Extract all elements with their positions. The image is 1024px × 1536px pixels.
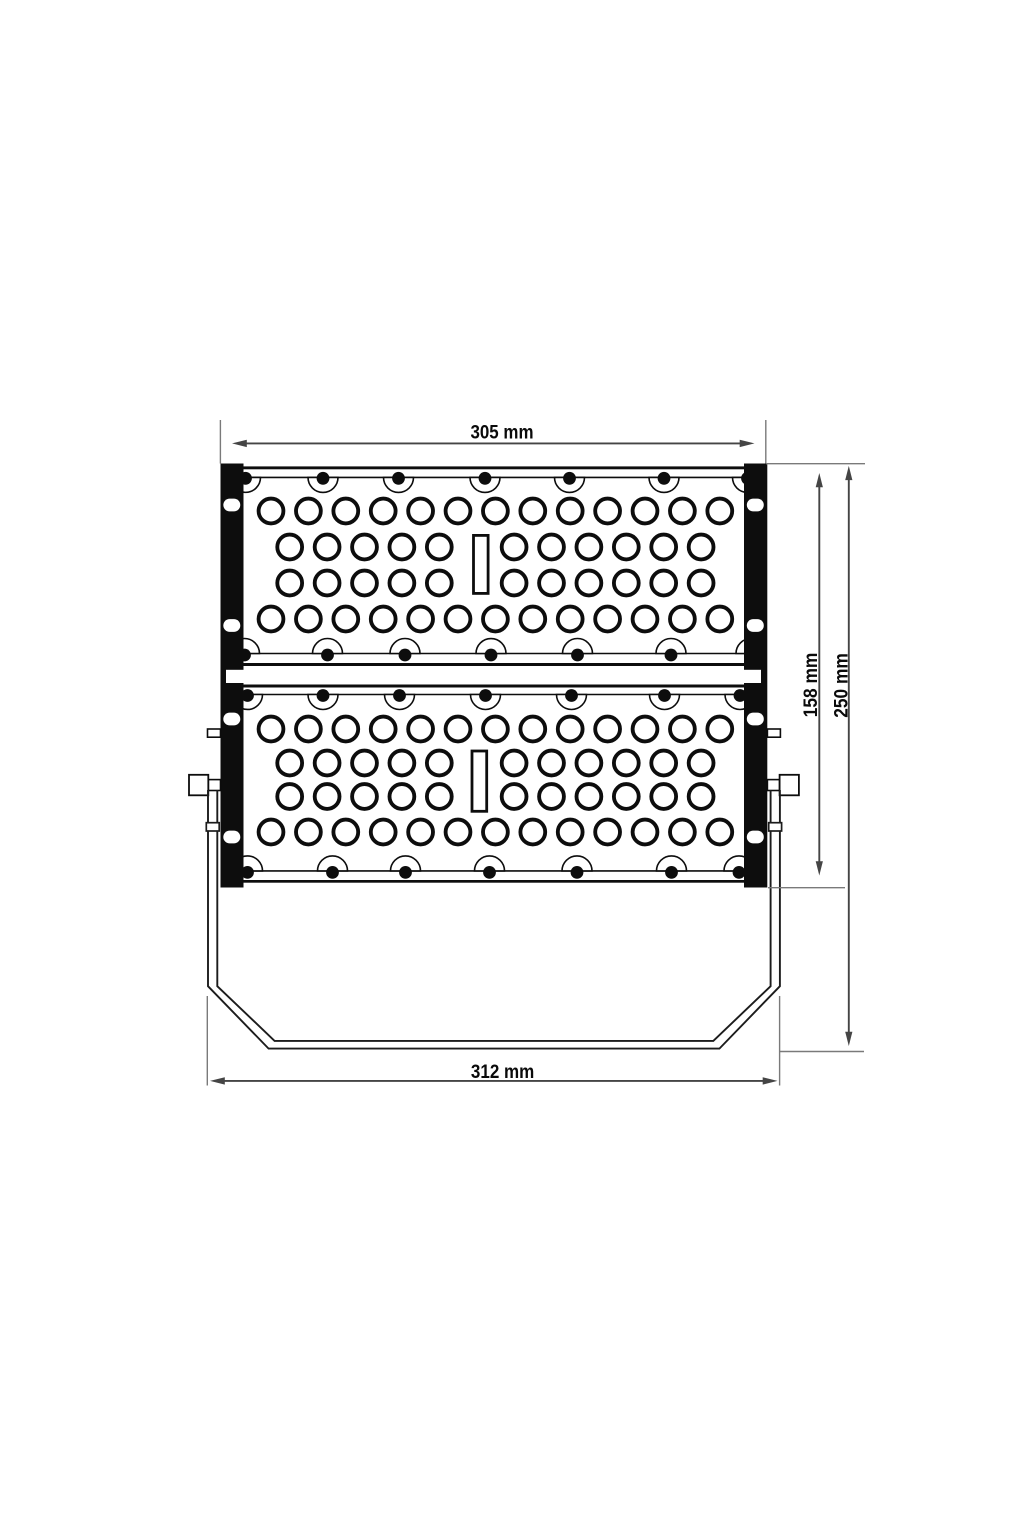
svg-text:250 mm: 250 mm <box>831 653 853 718</box>
svg-text:312 mm: 312 mm <box>471 1061 534 1083</box>
svg-text:158 mm: 158 mm <box>800 653 822 718</box>
svg-text:305 mm: 305 mm <box>471 422 534 444</box>
